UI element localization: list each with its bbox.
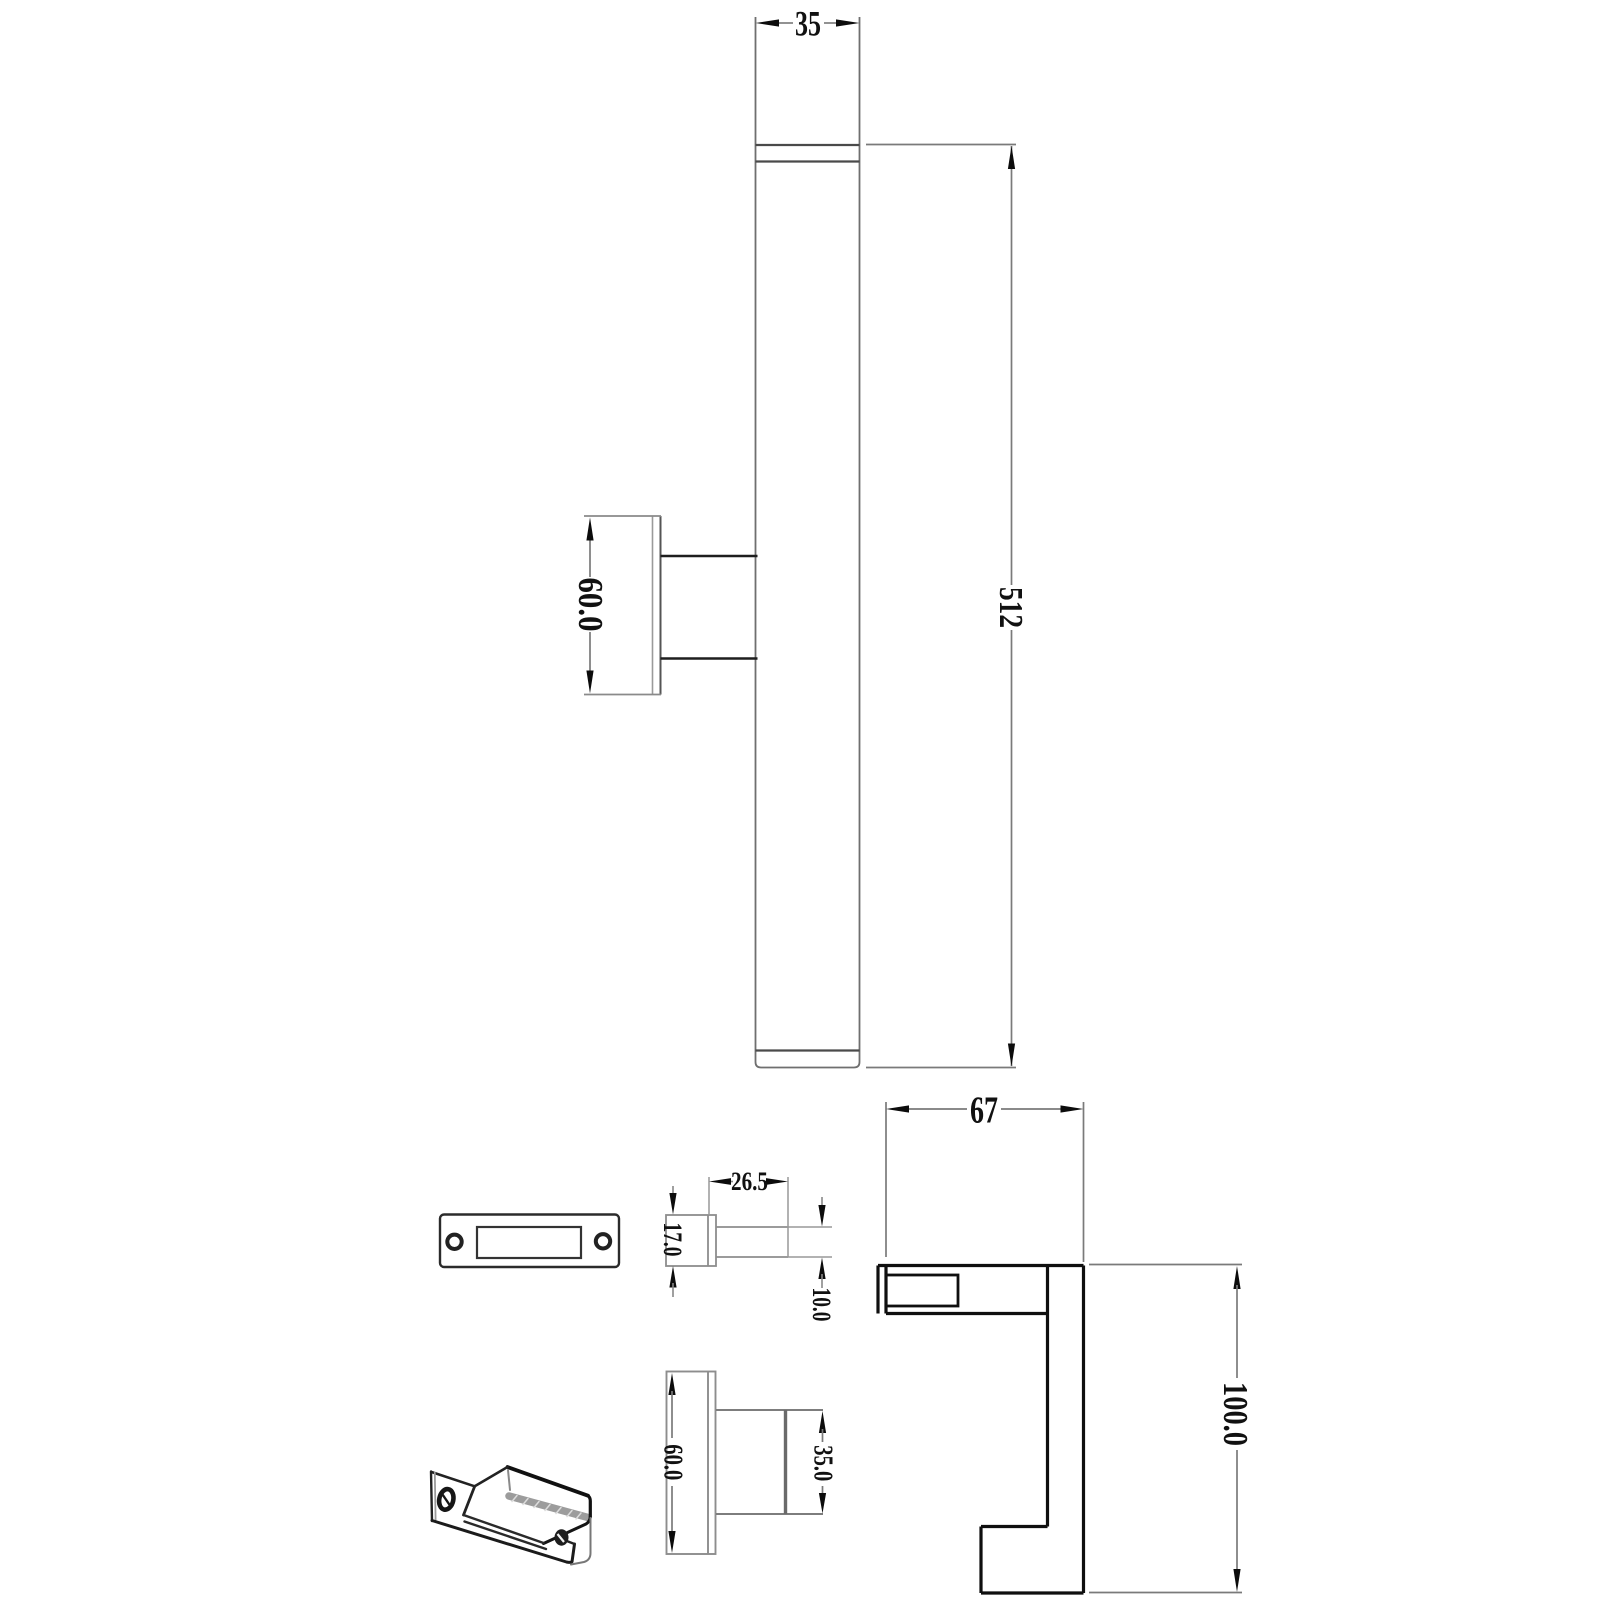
svg-text:35: 35 [795, 4, 821, 44]
svg-text:10.0: 10.0 [807, 1288, 836, 1322]
svg-text:35.0: 35.0 [808, 1445, 838, 1481]
svg-text:26.5: 26.5 [731, 1167, 768, 1196]
svg-text:100.0: 100.0 [1216, 1382, 1255, 1446]
svg-text:67: 67 [970, 1090, 998, 1132]
svg-text:17.0: 17.0 [658, 1223, 687, 1257]
svg-text:512: 512 [992, 587, 1029, 628]
svg-text:60.0: 60.0 [658, 1444, 688, 1480]
svg-text:60.0: 60.0 [571, 578, 610, 632]
